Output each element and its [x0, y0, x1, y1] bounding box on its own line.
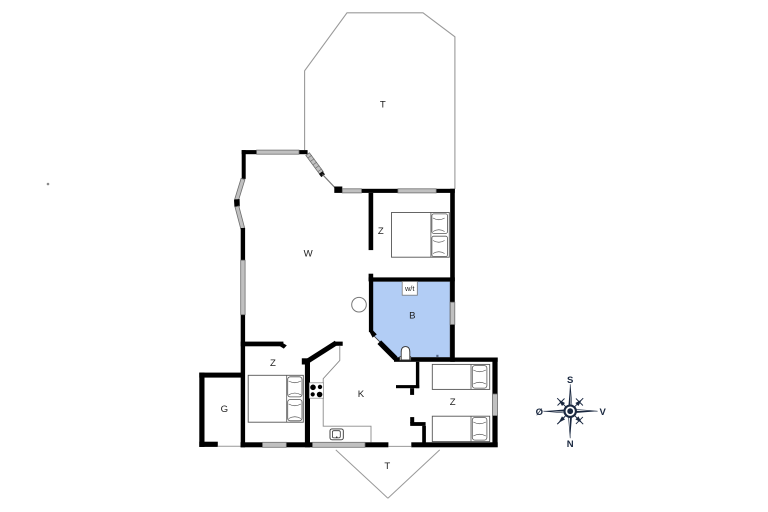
svg-text:N: N [567, 439, 574, 450]
svg-text:T: T [380, 100, 386, 111]
svg-text:Z: Z [270, 358, 276, 369]
svg-text:T: T [384, 461, 390, 472]
svg-text:V: V [600, 407, 607, 418]
svg-text:Z: Z [378, 226, 384, 237]
svg-text:K: K [358, 389, 365, 400]
svg-text:G: G [221, 404, 228, 415]
svg-text:Z: Z [450, 397, 456, 408]
svg-text:w/t: w/t [404, 284, 414, 293]
svg-text:Ø: Ø [536, 407, 543, 418]
svg-text:B: B [409, 310, 415, 321]
svg-text:S: S [567, 375, 573, 386]
svg-text:W: W [304, 248, 314, 259]
